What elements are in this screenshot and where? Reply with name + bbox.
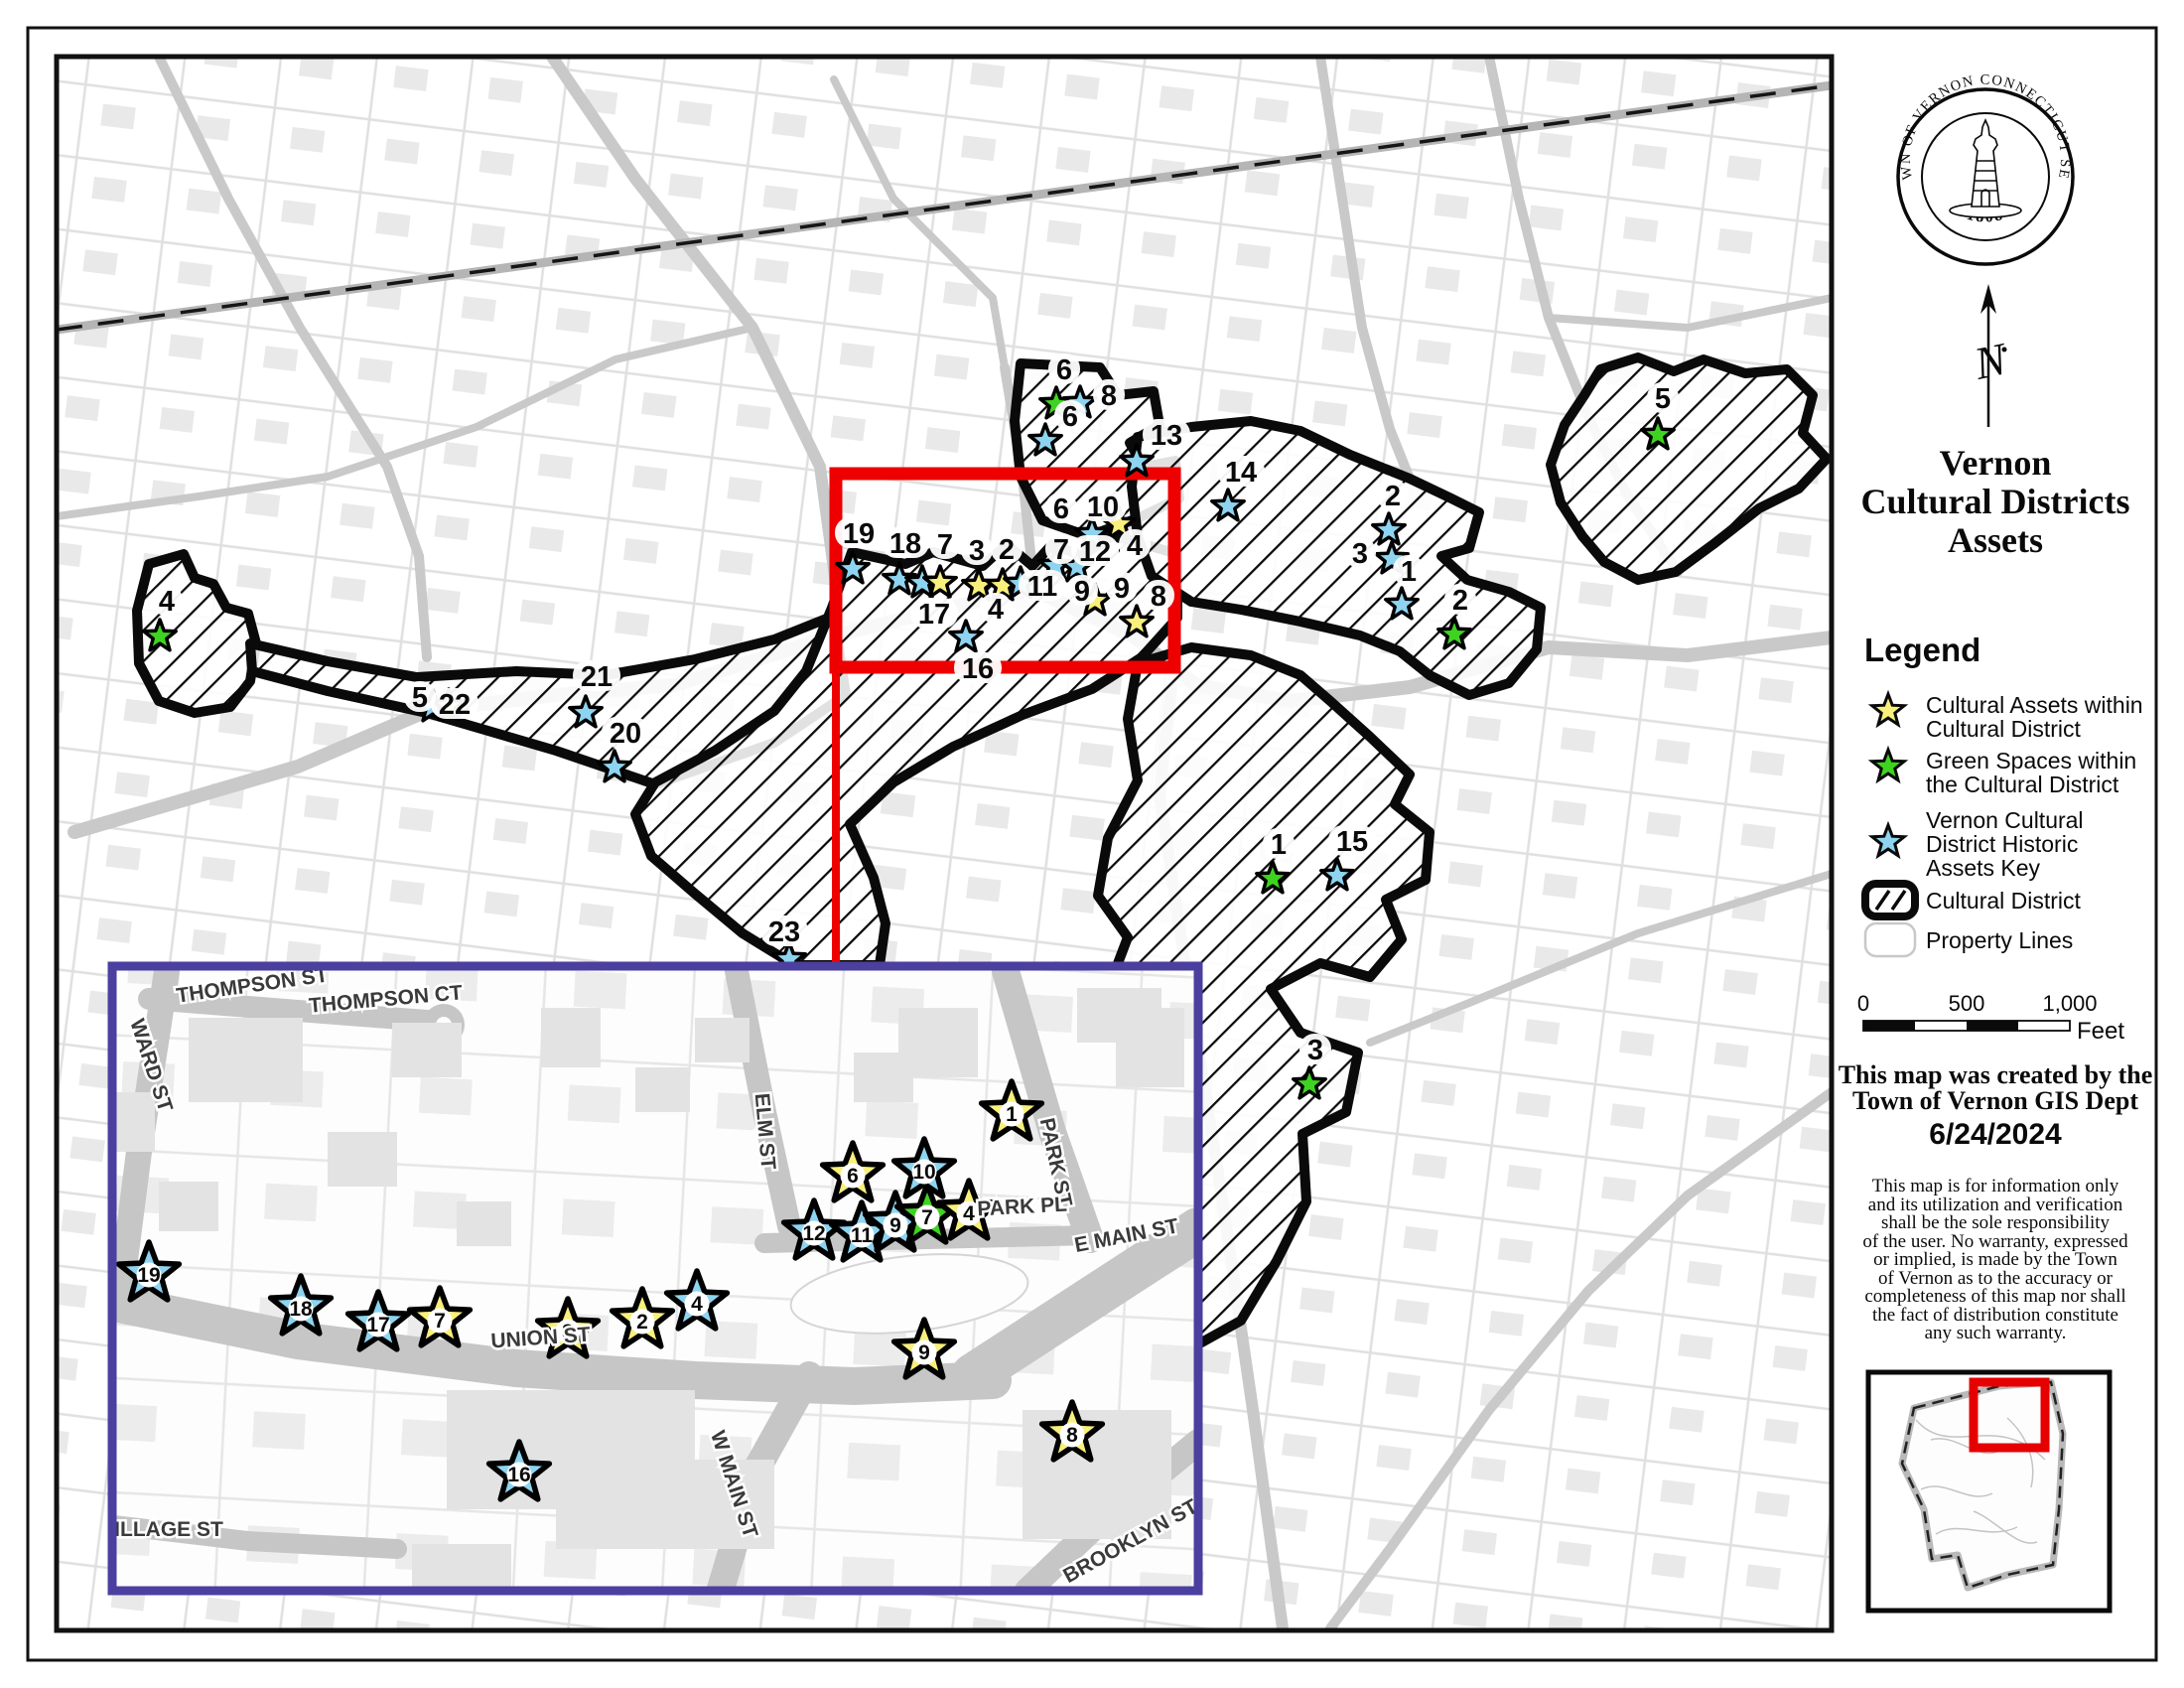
map-frame [57,57,1832,1630]
scale-tick-0: 0 [1857,991,1869,1016]
town-seal-logo: TOWN OF VERNON CONNECTICUT SEAL - 1808 - [0,0,2073,264]
scale-tick-500: 500 [1949,991,1985,1016]
sidebar-graphics: TOWN OF VERNON CONNECTICUT SEAL - 1808 -… [0,0,2184,1688]
page-border [28,28,2156,1660]
legend-yellow-star-icon [1872,694,1904,725]
legend-district-swatch [1865,884,1915,916]
legend-symbols [1865,694,1915,956]
legend-blue-star-icon [1872,825,1904,856]
legend-header: Legend [1864,632,1980,669]
credit-text: This map was created by the Town of Vern… [1836,1062,2155,1114]
scale-unit: Feet [2077,1018,2124,1045]
title-line-2: Cultural Districts [1836,483,2155,521]
title-line-3: Assets [1836,521,2155,560]
legend-item-historic-assets: Vernon Cultural District Historic Assets… [1926,808,2164,880]
legend-item-green-spaces: Green Spaces within the Cultural Distric… [1926,749,2164,796]
disclaimer-text: This map is for information only and its… [1843,1178,2147,1343]
title-line-1: Vernon [1836,444,2155,483]
legend-item-cultural-assets: Cultural Assets within Cultural District [1926,693,2164,741]
map-page: { "sidebar": { "seal_ring": "TOWN OF VER… [0,0,2184,1688]
map-title: Vernon Cultural Districts Assets [1836,444,2155,560]
legend-item-property-lines: Property Lines [1926,928,2164,952]
scale-tick-1000: 1,000 [2042,991,2097,1016]
north-arrow-icon: N [1969,284,2012,427]
north-label: N [1969,333,2012,389]
locator-map [1868,1372,2110,1611]
legend-item-cultural-district: Cultural District [1926,889,2164,913]
legend-green-star-icon [1872,750,1904,780]
legend-property-swatch [1865,923,1915,956]
map-date: 6/24/2024 [1836,1118,2155,1152]
scale-bar: 0 500 1,000 Feet [1857,991,2124,1045]
